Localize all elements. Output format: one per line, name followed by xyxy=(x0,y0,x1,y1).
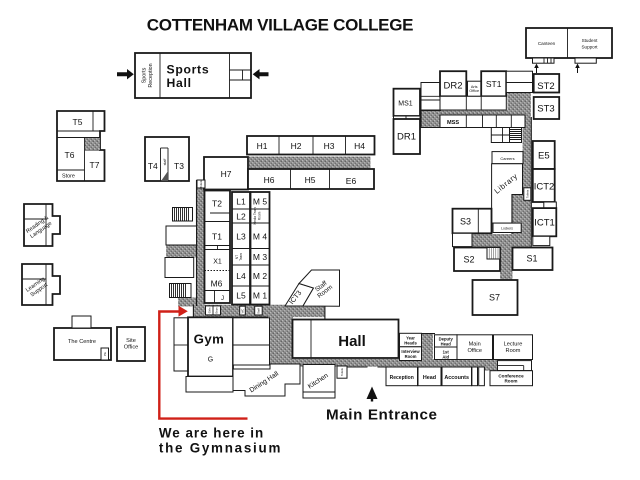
svg-text:M 5: M 5 xyxy=(253,197,267,207)
svg-text:Office: Office xyxy=(124,345,139,351)
svg-text:T3: T3 xyxy=(174,161,184,171)
svg-text:M 4: M 4 xyxy=(253,232,267,242)
svg-text:T6: T6 xyxy=(65,150,75,160)
svg-text:Girls: Girls xyxy=(208,307,212,313)
svg-text:S2: S2 xyxy=(463,255,474,265)
svg-text:M 3: M 3 xyxy=(253,252,267,262)
svg-text:DR2: DR2 xyxy=(443,81,462,92)
svg-text:T1: T1 xyxy=(212,232,222,242)
svg-text:X1: X1 xyxy=(213,259,222,266)
svg-text:the Gymnasium: the Gymnasium xyxy=(159,441,282,456)
svg-text:L2: L2 xyxy=(236,212,246,222)
svg-text:Media Team: Media Team xyxy=(253,207,257,225)
svg-text:Staff: Staff xyxy=(257,308,261,314)
svg-text:Toilets: Toilets xyxy=(340,367,344,376)
svg-text:WC: WC xyxy=(241,309,245,314)
svg-text:ST2: ST2 xyxy=(537,81,554,92)
svg-text:M 1: M 1 xyxy=(253,291,267,301)
svg-text:Hall: Hall xyxy=(338,333,366,350)
svg-text:L1: L1 xyxy=(236,197,246,207)
svg-text:H4: H4 xyxy=(354,141,365,151)
svg-text:ICT2: ICT2 xyxy=(534,182,555,193)
svg-text:T4: T4 xyxy=(148,161,158,171)
svg-text:Lecture: Lecture xyxy=(504,342,523,348)
svg-text:M 2: M 2 xyxy=(253,271,267,281)
svg-text:ST1: ST1 xyxy=(486,79,502,89)
svg-text:Office: Office xyxy=(467,348,482,354)
svg-text:DR1: DR1 xyxy=(397,132,416,143)
svg-text:Accounts: Accounts xyxy=(444,375,469,381)
svg-text:T2: T2 xyxy=(212,199,222,209)
svg-text:Main: Main xyxy=(469,342,481,348)
svg-text:S7: S7 xyxy=(489,293,500,303)
svg-text:Room: Room xyxy=(506,348,521,354)
svg-text:Site: Site xyxy=(126,338,136,344)
svg-text:Head: Head xyxy=(423,375,436,381)
svg-text:Toilets: Toilets xyxy=(199,179,203,188)
svg-text:L5: L5 xyxy=(236,291,246,301)
svg-text:Toilets: Toilets xyxy=(525,189,529,198)
svg-text:Student: Student xyxy=(582,38,599,43)
svg-text:The Centre: The Centre xyxy=(68,339,96,345)
svg-text:Heads: Heads xyxy=(404,341,417,346)
svg-text:Room: Room xyxy=(405,354,417,359)
svg-text:Room: Room xyxy=(258,211,262,220)
svg-text:T7: T7 xyxy=(90,160,100,170)
svg-text:ICT1: ICT1 xyxy=(534,218,555,229)
svg-text:H3: H3 xyxy=(324,141,335,151)
svg-text:Room: Room xyxy=(504,379,517,384)
svg-text:Store: Store xyxy=(62,174,75,180)
svg-text:H7: H7 xyxy=(221,169,232,179)
svg-text:E5: E5 xyxy=(538,151,550,162)
svg-text:PE: PE xyxy=(103,352,107,356)
svg-text:H1: H1 xyxy=(257,141,268,151)
svg-text:Gym: Gym xyxy=(194,332,225,347)
svg-text:Reception: Reception xyxy=(148,63,154,87)
svg-text:Sports: Sports xyxy=(142,67,148,83)
svg-text:M6: M6 xyxy=(211,279,223,289)
svg-text:T5: T5 xyxy=(73,117,83,127)
svg-text:Lockers: Lockers xyxy=(501,226,513,230)
svg-text:MS1: MS1 xyxy=(398,101,413,108)
svg-text:COTTENHAM VILLAGE COLLEGE: COTTENHAM VILLAGE COLLEGE xyxy=(147,16,413,35)
svg-text:Team: Team xyxy=(239,253,243,261)
svg-text:Boys: Boys xyxy=(215,307,219,314)
svg-text:Support: Support xyxy=(581,45,598,50)
svg-text:staff: staff xyxy=(163,159,167,166)
svg-text:Careers: Careers xyxy=(500,156,514,161)
svg-text:Head: Head xyxy=(441,342,452,347)
svg-text:S3: S3 xyxy=(460,217,471,227)
svg-text:ST3: ST3 xyxy=(537,104,554,115)
svg-text:L4: L4 xyxy=(236,271,246,281)
svg-text:G: G xyxy=(208,357,213,364)
svg-text:Main Entrance: Main Entrance xyxy=(326,407,438,424)
svg-text:Sports: Sports xyxy=(167,63,210,77)
svg-text:S1: S1 xyxy=(526,254,537,264)
svg-text:MSS: MSS xyxy=(447,120,459,126)
svg-text:L3: L3 xyxy=(236,232,246,242)
svg-text:E6: E6 xyxy=(346,176,357,186)
svg-text:We are here in: We are here in xyxy=(159,425,264,440)
svg-text:H2: H2 xyxy=(291,141,302,151)
svg-text:Reception: Reception xyxy=(390,375,414,381)
svg-text:H6: H6 xyxy=(264,175,275,185)
svg-text:H5: H5 xyxy=(305,175,316,185)
svg-text:Hall: Hall xyxy=(167,76,192,90)
svg-text:Office: Office xyxy=(469,89,479,93)
svg-text:Aid: Aid xyxy=(442,355,449,360)
svg-text:Canteen: Canteen xyxy=(538,41,556,46)
svg-text:J: J xyxy=(221,296,224,302)
